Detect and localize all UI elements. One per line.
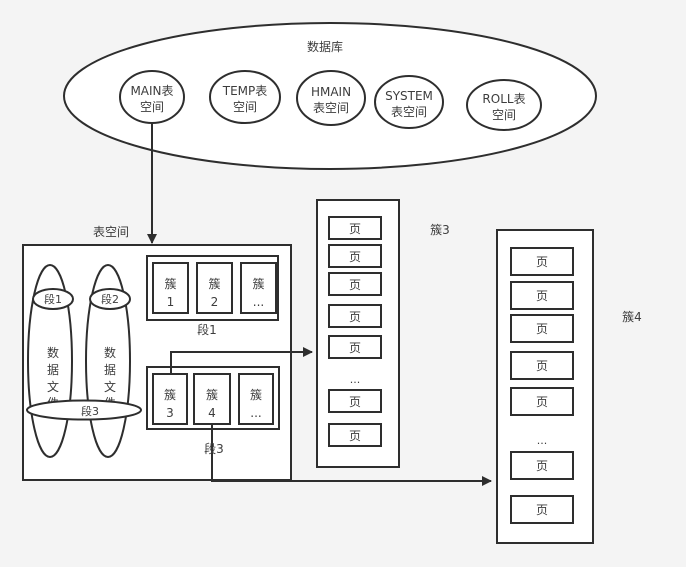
tablespace-hmain-line2: 表空间: [313, 101, 349, 115]
tablespace-hmain-line1: HMAIN: [311, 85, 351, 99]
page-label: 页: [349, 310, 361, 324]
tablespace-temp-line2: 空间: [233, 100, 257, 114]
page-label: 页: [536, 322, 548, 336]
database-storage-diagram: 数据库 MAIN表 空间 TEMP表 空间 HMAIN 表空间 SYSTEM 表…: [0, 0, 686, 567]
page-label: 页: [349, 341, 361, 355]
tablespace-box-label: 表空间: [93, 225, 129, 239]
extent1-top: 簇: [164, 276, 176, 291]
page-ellipsis: ...: [537, 434, 548, 447]
page-label: 页: [349, 429, 361, 443]
tablespace-roll-line1: ROLL表: [482, 92, 525, 106]
page-label: 页: [349, 278, 361, 292]
extent-group2-label: 段3: [204, 441, 224, 456]
datafile2-char-1: 据: [104, 363, 116, 377]
datafile2-char-0: 数: [104, 345, 116, 360]
extent-etc2-bottom: ...: [250, 406, 261, 420]
tablespace-roll-line2: 空间: [492, 108, 516, 122]
extent-group1-label: 段1: [197, 322, 217, 337]
tablespace-main-line2: 空间: [140, 100, 164, 114]
page-label: 页: [536, 255, 548, 269]
segment1-label: 段1: [44, 292, 62, 306]
page-label: 页: [536, 395, 548, 409]
tablespace-main-line1: MAIN表: [130, 84, 173, 98]
page-panel-cluster3-label: 簇3: [430, 222, 450, 237]
extent-etc1-top: 簇: [252, 276, 264, 291]
page-label: 页: [536, 459, 548, 473]
extent4-bottom: 4: [208, 406, 216, 420]
page-panel-cluster4-label: 簇4: [622, 309, 642, 324]
page-label: 页: [536, 503, 548, 517]
extent3-top: 簇: [164, 387, 176, 402]
extent-etc2-top: 簇: [250, 387, 262, 402]
tablespace-system-line1: SYSTEM: [385, 89, 433, 103]
datafile1-char-2: 文: [47, 379, 59, 394]
page-label: 页: [349, 222, 361, 236]
database-label: 数据库: [307, 39, 343, 54]
page-label: 页: [536, 359, 548, 373]
extent2-top: 簇: [208, 276, 220, 291]
page-label: 页: [349, 250, 361, 264]
datafile1-char-0: 数: [47, 345, 59, 360]
extent1-bottom: 1: [167, 295, 175, 309]
datafile2-char-2: 文: [104, 379, 116, 394]
datafile1-char-1: 据: [47, 363, 59, 377]
segment3-label: 段3: [81, 404, 99, 418]
extent3-bottom: 3: [166, 406, 174, 420]
page-ellipsis: ...: [350, 373, 361, 386]
extent2-bottom: 2: [211, 295, 219, 309]
tablespace-temp-line1: TEMP表: [222, 84, 268, 98]
page-label: 页: [536, 289, 548, 303]
tablespace-system-line2: 表空间: [391, 105, 427, 119]
segment2-label: 段2: [101, 292, 119, 306]
page-label: 页: [349, 395, 361, 409]
extent4-top: 簇: [206, 387, 218, 402]
extent-etc1-bottom: ...: [253, 295, 264, 309]
